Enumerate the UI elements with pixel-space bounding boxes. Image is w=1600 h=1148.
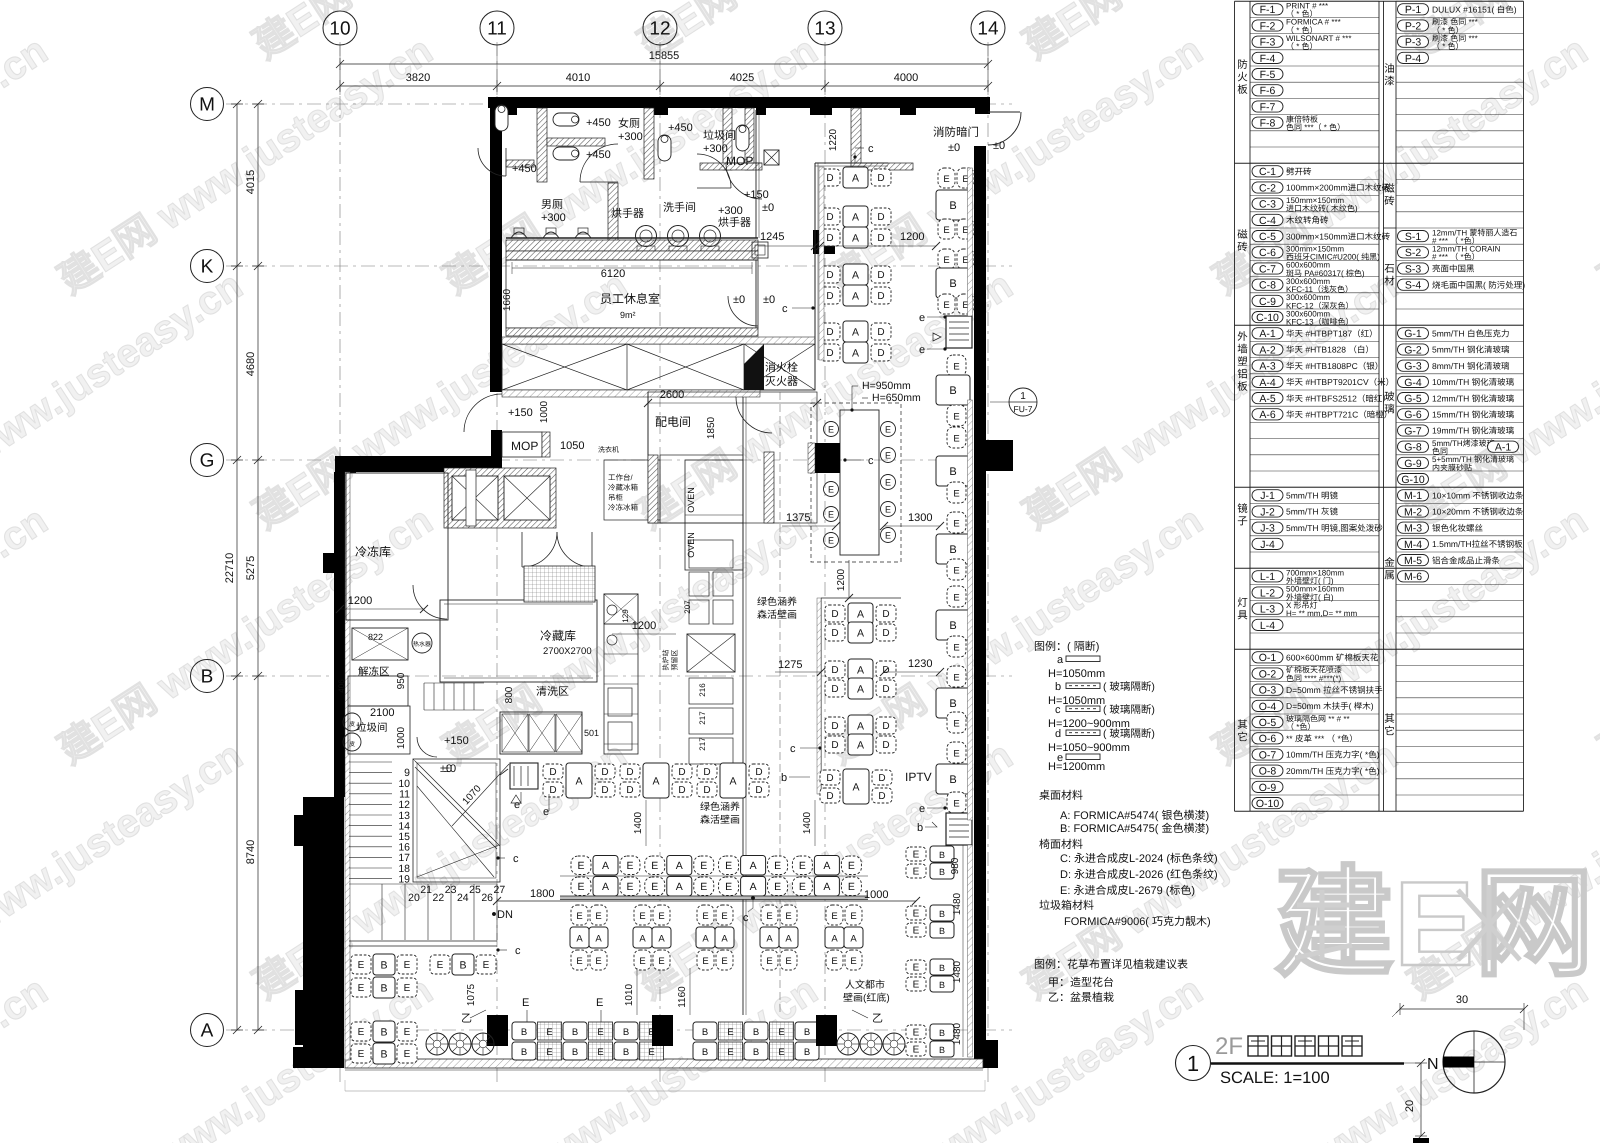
svg-text:E: E [953, 519, 959, 530]
svg-text:吊柜: 吊柜 [608, 493, 623, 502]
svg-text:洗衣机: 洗衣机 [598, 446, 619, 454]
svg-text:E: E [943, 174, 949, 185]
svg-text:1220: 1220 [828, 128, 839, 151]
svg-text:执炉站: 执炉站 [662, 650, 670, 671]
svg-text:E: E [648, 1047, 654, 1058]
svg-text:26: 26 [481, 892, 493, 904]
svg-text:B: B [753, 1047, 759, 1058]
svg-text:e: e [919, 312, 925, 324]
svg-text:D: D [877, 212, 884, 223]
svg-text:砖: 砖 [1237, 242, 1248, 254]
svg-text:A: A [850, 933, 857, 944]
svg-text:E: E [943, 255, 949, 266]
svg-text:15855: 15855 [649, 50, 680, 62]
svg-text:KFC-13（咖啡色）: KFC-13（咖啡色） [1286, 318, 1354, 327]
svg-text:D: D [882, 721, 889, 732]
svg-text:配电间: 配电间 [655, 415, 691, 429]
svg-text:8740: 8740 [245, 840, 257, 864]
svg-text:男厕: 男厕 [541, 199, 563, 211]
svg-text:E: E [766, 911, 772, 922]
svg-text:B: B [380, 1026, 387, 1038]
svg-text:2600: 2600 [660, 389, 684, 401]
svg-text:工作台/: 工作台/ [608, 473, 633, 482]
svg-text:B: B [949, 544, 956, 556]
svg-text:1010: 1010 [624, 983, 635, 1006]
svg-text:300mm×150mm进口木纹砖: 300mm×150mm进口木纹砖 [1286, 231, 1391, 241]
svg-text:D: D [826, 327, 833, 338]
svg-text:E: E [913, 1028, 920, 1039]
svg-text:P-2: P-2 [1405, 20, 1422, 32]
svg-text:B: B [939, 909, 945, 919]
svg-text:B: B [753, 1027, 759, 1038]
svg-text:B: B [380, 982, 387, 994]
svg-text:S-1: S-1 [1405, 231, 1422, 243]
svg-text:E: E [576, 956, 582, 967]
svg-text:1300: 1300 [908, 512, 932, 524]
svg-text:垃圾箱材料: 垃圾箱材料 [1039, 899, 1094, 912]
svg-text:±0: ±0 [948, 142, 960, 154]
svg-text:E: E [785, 911, 791, 922]
svg-text:玻: 玻 [1384, 391, 1395, 403]
svg-text:A: A [602, 881, 609, 893]
svg-text:O-10: O-10 [1256, 798, 1280, 810]
svg-text:进口木纹砖( 木纹色): 进口木纹砖( 木纹色) [1286, 204, 1358, 213]
svg-text:O-9: O-9 [1259, 782, 1277, 794]
svg-text:冷藏冰箱: 冷藏冰箱 [608, 483, 638, 492]
svg-text:10mm/TH 钢化清玻璃: 10mm/TH 钢化清玻璃 [1432, 377, 1515, 387]
svg-text:皮: 皮 [349, 740, 355, 748]
svg-text:E: E [404, 1049, 411, 1060]
svg-text:华天 #HTB1808PC（银）: 华天 #HTB1808PC（银） [1286, 361, 1383, 371]
svg-text:E: E [913, 980, 920, 991]
svg-text:9m²: 9m² [620, 310, 636, 320]
svg-text:OVEN: OVEN [686, 532, 696, 558]
svg-text:E: E [885, 505, 891, 515]
svg-text:E: E [358, 1027, 365, 1038]
svg-text:E: E [848, 860, 855, 872]
svg-text:子: 子 [1237, 516, 1248, 528]
svg-text:L-4: L-4 [1260, 620, 1275, 632]
svg-text:2F: 2F [1215, 1033, 1243, 1060]
svg-text:砖: 砖 [1384, 196, 1395, 208]
svg-text:A: A [639, 933, 646, 944]
svg-text:E: E [831, 911, 837, 922]
svg-text:+300: +300 [703, 143, 728, 155]
svg-text:M: M [199, 95, 215, 116]
svg-text:b: b [781, 772, 787, 784]
svg-text:P-4: P-4 [1405, 53, 1422, 65]
svg-text:+450: +450 [668, 122, 693, 134]
svg-text:19mm/TH 钢化清玻璃: 19mm/TH 钢化清玻璃 [1432, 426, 1515, 436]
svg-text:5mm/TH 明镜: 5mm/TH 明镜 [1286, 491, 1338, 501]
svg-text:乙: 乙 [872, 1013, 883, 1025]
svg-text:5mm/TH 明镜,图案处泼砂: 5mm/TH 明镜,图案处泼砂 [1286, 523, 1383, 533]
svg-text:D: D [626, 767, 633, 778]
svg-text:A: A [721, 933, 728, 944]
svg-text:10mm/TH 压克力字( *色): 10mm/TH 压克力字( *色) [1286, 750, 1380, 760]
svg-text:女厕: 女厕 [618, 117, 640, 130]
svg-text:E: E [404, 960, 411, 971]
svg-text:C-5: C-5 [1259, 231, 1276, 243]
svg-text:C-9: C-9 [1259, 296, 1276, 308]
svg-text:D: D [826, 773, 833, 784]
svg-text:B: B [521, 1027, 527, 1038]
svg-text:甲：造型花台: 甲：造型花台 [1048, 976, 1114, 989]
svg-text:E: E [913, 963, 920, 974]
svg-text:E: E [651, 881, 658, 893]
svg-text:FU-7: FU-7 [1014, 404, 1033, 414]
svg-text:B: B [702, 1047, 708, 1058]
svg-text:D: D [826, 791, 833, 802]
svg-text:人文都市: 人文都市 [845, 979, 885, 991]
svg-text:E: E [597, 1027, 603, 1038]
svg-text:c: c [743, 912, 749, 924]
svg-text:铝合金成品止滑条: 铝合金成品止滑条 [1432, 555, 1501, 565]
svg-text:C-6: C-6 [1259, 247, 1276, 259]
svg-text:A: A [852, 232, 859, 244]
svg-text:O-7: O-7 [1259, 749, 1277, 761]
svg-text:E: E [700, 860, 707, 872]
svg-text:A: A [676, 881, 683, 893]
svg-text:F-4: F-4 [1260, 53, 1276, 65]
svg-text:A: A [857, 664, 864, 676]
svg-text:A: A [857, 627, 864, 639]
svg-text:±0: ±0 [763, 294, 775, 306]
svg-text:椅面材料: 椅面材料 [1039, 838, 1083, 851]
svg-text:22710: 22710 [224, 553, 236, 584]
svg-text:25: 25 [469, 884, 481, 896]
svg-text:E: E [828, 510, 834, 520]
svg-text:J-4: J-4 [1260, 539, 1275, 551]
svg-text:A: A [857, 683, 864, 695]
svg-text:5275: 5275 [245, 556, 257, 580]
svg-text:E: E [885, 478, 891, 488]
svg-text:B: B [949, 620, 956, 632]
svg-text:D: D [831, 740, 838, 751]
svg-text:1000: 1000 [864, 889, 888, 901]
svg-text:OVEN: OVEN [686, 487, 696, 513]
svg-text:A-2: A-2 [1259, 344, 1276, 356]
svg-text:S-4: S-4 [1405, 280, 1422, 292]
svg-text:O-3: O-3 [1259, 685, 1277, 697]
svg-text:E: E [953, 673, 959, 684]
svg-text:E: E [953, 719, 959, 730]
svg-text:1660: 1660 [502, 288, 513, 311]
svg-text:绿色涵养: 绿色涵养 [700, 801, 740, 813]
svg-text:10×10mm 不锈钢收边条: 10×10mm 不锈钢收边条 [1432, 491, 1524, 501]
svg-text:D: D [703, 785, 710, 796]
svg-text:1245: 1245 [760, 231, 784, 243]
svg-text:塑: 塑 [1237, 356, 1248, 368]
svg-text:A: A [857, 739, 864, 751]
svg-text:5mm/TH 钢化清玻璃: 5mm/TH 钢化清玻璃 [1432, 345, 1510, 355]
svg-text:C-7: C-7 [1259, 263, 1276, 275]
svg-text:H=1200mm: H=1200mm [1048, 761, 1105, 773]
svg-text:G-7: G-7 [1404, 425, 1422, 437]
svg-text:A: A [823, 860, 830, 872]
svg-text:D: D [549, 785, 556, 796]
svg-text:D: D [877, 327, 884, 338]
svg-text:D: D [703, 767, 710, 778]
svg-text:F-8: F-8 [1260, 118, 1276, 130]
svg-text:华天 #HTBPT721C（暗橙）: 华天 #HTBPT721C（暗橙） [1286, 410, 1392, 420]
svg-text:E: E [778, 1047, 784, 1058]
svg-text:23: 23 [445, 884, 457, 896]
svg-text:1480: 1480 [952, 1022, 963, 1045]
svg-text:B: B [623, 1027, 629, 1038]
svg-text:20mm/TH 压克力字( *色): 20mm/TH 压克力字( *色) [1286, 766, 1380, 776]
svg-text:D: D [826, 291, 833, 302]
svg-text:A-4: A-4 [1259, 377, 1276, 389]
svg-text:其: 其 [1237, 719, 1248, 731]
svg-text:E: E [953, 412, 959, 423]
svg-text:E: E [953, 593, 959, 604]
svg-text:D: D [877, 173, 884, 184]
svg-text:A: A [852, 269, 859, 281]
svg-text:E: E [702, 956, 708, 967]
svg-text:板: 板 [1237, 381, 1248, 393]
svg-text:D: D [877, 270, 884, 281]
svg-text:D: D [882, 684, 889, 695]
svg-text:绿色涵养: 绿色涵养 [757, 596, 797, 608]
svg-text:E: E [943, 300, 949, 311]
svg-text:C-2: C-2 [1259, 182, 1276, 194]
svg-text:217: 217 [698, 737, 707, 751]
svg-text:1480: 1480 [952, 960, 963, 983]
svg-text:E: E [546, 1027, 552, 1038]
svg-text:27: 27 [494, 884, 506, 896]
svg-text:G-5: G-5 [1404, 393, 1422, 405]
svg-text:A: A [857, 720, 864, 732]
svg-text:E: E [596, 997, 603, 1009]
svg-text:1230: 1230 [908, 658, 932, 670]
svg-text:森活壁画: 森活壁画 [700, 814, 740, 826]
svg-text:B: B [939, 926, 945, 936]
svg-text:J-1: J-1 [1260, 490, 1275, 502]
svg-text:消火栓: 消火栓 [765, 361, 798, 374]
svg-text:M-4: M-4 [1404, 539, 1422, 551]
svg-text:MOP: MOP [511, 439, 538, 453]
svg-text:E: E [727, 1047, 733, 1058]
svg-text:清洗区: 清洗区 [536, 685, 569, 698]
svg-text:M-6: M-6 [1404, 571, 1422, 583]
svg-text:980: 980 [950, 857, 961, 874]
svg-text:灭火器: 灭火器 [765, 375, 798, 388]
svg-text:M-3: M-3 [1404, 523, 1422, 535]
svg-text:G-3: G-3 [1404, 361, 1422, 373]
svg-text:属: 属 [1384, 570, 1395, 582]
svg-text:P-3: P-3 [1405, 37, 1422, 49]
svg-text:B: B [623, 1047, 629, 1058]
svg-text:# *** （ *色）: # *** （ *色） [1432, 253, 1480, 262]
svg-text:劈开砖: 劈开砖 [1286, 167, 1312, 177]
svg-text:E: E [913, 1045, 920, 1056]
svg-text:D: D [877, 233, 884, 244]
svg-text:c: c [782, 303, 788, 315]
svg-text:A: A [852, 781, 859, 793]
svg-text:1850: 1850 [706, 416, 717, 439]
svg-text:D: 永进合成皮L-2026 (红色条纹): D: 永进合成皮L-2026 (红色条纹) [1060, 868, 1218, 881]
svg-text:E: E [404, 1027, 411, 1038]
svg-text:O-4: O-4 [1259, 701, 1277, 713]
svg-text:烘手器: 烘手器 [718, 216, 751, 229]
svg-text:c: c [1055, 704, 1061, 716]
svg-text:( 玻璃隔断): ( 玻璃隔断) [1103, 728, 1155, 740]
svg-text:B: B [572, 1027, 578, 1038]
svg-text:100mm×200mm进口木纹砖: 100mm×200mm进口木纹砖 [1286, 183, 1391, 193]
svg-text:乙: 乙 [461, 1013, 472, 1025]
svg-text:+300: +300 [618, 131, 643, 143]
svg-text:具: 具 [1237, 610, 1248, 622]
svg-text:E: E [953, 489, 959, 500]
svg-text:1200: 1200 [836, 568, 847, 591]
svg-text:E: E [725, 881, 732, 893]
svg-text:B: FORMICA#5475( 金色横漤): B: FORMICA#5475( 金色横漤) [1060, 822, 1209, 835]
svg-text:+300: +300 [541, 212, 566, 224]
svg-text:E: E [358, 960, 365, 971]
svg-text:镜: 镜 [1237, 503, 1248, 515]
svg-text:乙：盆景植栽: 乙：盆景植栽 [1048, 991, 1114, 1004]
svg-text:B: B [949, 466, 956, 478]
svg-text:灯: 灯 [1237, 597, 1248, 609]
svg-text:c: c [515, 945, 521, 957]
svg-text:E: E [799, 881, 806, 893]
svg-text:A: A [857, 608, 864, 620]
svg-text:A: A [595, 933, 602, 944]
svg-text:B: B [949, 698, 956, 710]
svg-text:B: B [702, 1027, 708, 1038]
svg-text:色同 ***（ * 色）: 色同 ***（ * 色） [1286, 123, 1345, 132]
svg-text:E: E [953, 799, 959, 810]
svg-text:石: 石 [1384, 263, 1395, 275]
svg-text:207: 207 [683, 600, 692, 614]
svg-text:员工休息室: 员工休息室 [600, 292, 660, 306]
svg-text:1275: 1275 [778, 659, 802, 671]
svg-text:G-4: G-4 [1404, 377, 1422, 389]
svg-text:（ * 色）: （ * 色） [1432, 42, 1464, 51]
svg-text:12mm/TH 钢化清玻璃: 12mm/TH 钢化清玻璃 [1432, 393, 1515, 403]
svg-text:1800: 1800 [530, 888, 554, 900]
svg-text:600×600mm 矿棉板天花: 600×600mm 矿棉板天花 [1286, 653, 1379, 663]
svg-text:E: E [913, 926, 920, 937]
svg-text:e: e [919, 344, 925, 356]
svg-text:B: B [949, 774, 956, 786]
svg-text:内夹膜砂贴: 内夹膜砂贴 [1432, 463, 1472, 472]
svg-text:J-3: J-3 [1260, 523, 1275, 535]
svg-text:A: FORMICA#5474( 银色横漤): A: FORMICA#5474( 银色横漤) [1060, 809, 1209, 822]
svg-text:壁画(红底): 壁画(红底) [843, 992, 890, 1004]
svg-text:O-1: O-1 [1259, 652, 1277, 664]
svg-text:它: 它 [1237, 732, 1248, 744]
svg-text:13: 13 [814, 19, 835, 40]
svg-text:c: c [868, 143, 874, 155]
svg-text:材: 材 [1384, 276, 1395, 288]
svg-text:F-7: F-7 [1260, 101, 1276, 113]
svg-text:B: B [949, 385, 956, 397]
svg-text:E: E [626, 860, 633, 872]
svg-text:璃: 璃 [1384, 404, 1395, 416]
svg-text:D: D [831, 628, 838, 639]
svg-text:E: E [774, 881, 781, 893]
svg-text:e: e [543, 806, 549, 818]
svg-text:+150: +150 [508, 407, 533, 419]
svg-text:E: E [725, 860, 732, 872]
svg-text:H=650mm: H=650mm [872, 392, 921, 404]
svg-text:板: 板 [1237, 84, 1248, 96]
svg-text:磁: 磁 [1384, 183, 1395, 195]
svg-text:c: c [790, 743, 796, 755]
svg-text:10×20mm 不锈钢收边条: 10×20mm 不锈钢收边条 [1432, 507, 1524, 517]
svg-text:华天 #HTBPT187（红）: 华天 #HTBPT187（红） [1286, 329, 1378, 339]
svg-text:±0: ±0 [762, 202, 774, 214]
svg-text:A: A [750, 860, 757, 872]
svg-text:E: E [577, 881, 584, 893]
svg-text:L-3: L-3 [1260, 604, 1275, 616]
svg-text:E: E [358, 1049, 365, 1060]
svg-text:E: E [651, 860, 658, 872]
svg-text:e: e [919, 803, 925, 815]
svg-text:D: D [755, 785, 762, 796]
svg-text:( 玻璃隔断): ( 玻璃隔断) [1103, 704, 1155, 716]
svg-text:E: E [658, 911, 664, 922]
svg-text:D: D [882, 740, 889, 751]
svg-text:1400: 1400 [633, 811, 644, 834]
svg-text:E: E [597, 1047, 603, 1058]
svg-text:预留区: 预留区 [671, 650, 679, 671]
svg-text:C-1: C-1 [1259, 166, 1276, 178]
svg-text:E: E [943, 225, 949, 236]
svg-text:E: E [404, 983, 411, 994]
svg-text:b: b [1055, 681, 1061, 693]
svg-text:F-6: F-6 [1260, 85, 1276, 97]
svg-text:D: D [601, 785, 608, 796]
svg-text:217: 217 [698, 711, 707, 725]
svg-text:银色化妆螺丝: 银色化妆螺丝 [1432, 523, 1484, 533]
svg-text:SCALE: 1=100: SCALE: 1=100 [1220, 1069, 1330, 1087]
svg-text:漆: 漆 [1384, 76, 1395, 88]
svg-text:E: E [913, 909, 920, 920]
svg-text:4010: 4010 [566, 72, 590, 84]
svg-text:（ *色）: （ *色） [1286, 723, 1315, 732]
svg-text:亮面中国黑: 亮面中国黑 [1432, 264, 1475, 274]
svg-text:D=50mm 拉丝不锈钢扶手: D=50mm 拉丝不锈钢扶手 [1286, 685, 1383, 695]
svg-text:D: D [831, 721, 838, 732]
svg-text:E: E [639, 911, 645, 922]
svg-text:+150: +150 [444, 735, 469, 747]
svg-text:A: A [852, 290, 859, 302]
svg-text:D: D [831, 684, 838, 695]
svg-text:A: A [852, 211, 859, 223]
svg-text:E: E [828, 485, 834, 495]
svg-text:E: E [702, 911, 708, 922]
svg-text:A: A [750, 881, 757, 893]
svg-text:M-5: M-5 [1404, 555, 1422, 567]
svg-text:B: B [939, 963, 945, 973]
svg-text:E: E [785, 956, 791, 967]
svg-text:9: 9 [404, 767, 410, 779]
svg-text:B: B [939, 1028, 945, 1038]
svg-text:A: A [576, 933, 583, 944]
svg-text:森活壁画: 森活壁画 [757, 609, 797, 621]
svg-text:E: E [953, 643, 959, 654]
svg-text:B: B [804, 1047, 810, 1058]
svg-text:冷藏库: 冷藏库 [540, 629, 576, 643]
svg-text:E: E [953, 434, 959, 445]
svg-text:E: E [828, 536, 834, 546]
svg-text:E: E [577, 860, 584, 872]
svg-text:A-5: A-5 [1259, 393, 1276, 405]
svg-text:4680: 4680 [245, 352, 257, 376]
